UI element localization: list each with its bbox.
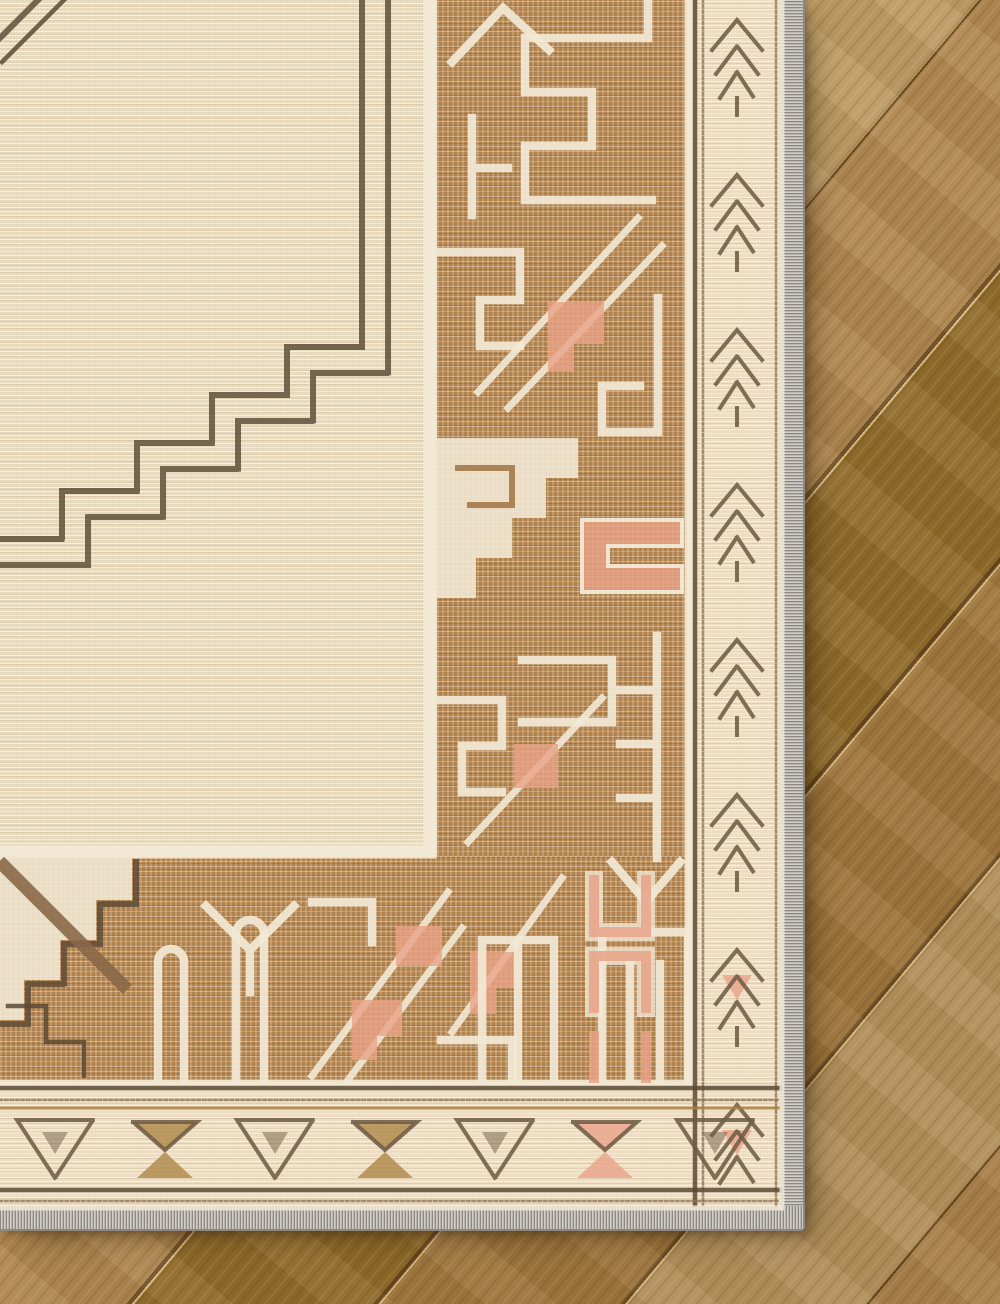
rug-serged-edge-right — [780, 0, 805, 1229]
rug-guard-band-bottom — [0, 1082, 780, 1206]
rug-guard-band-right — [687, 0, 780, 1206]
rug-serged-edge-bottom — [0, 1206, 803, 1231]
area-rug — [0, 0, 803, 1229]
rug-on-floor-photo — [0, 0, 1000, 1304]
rug-field — [0, 0, 437, 856]
rug-border-band-bottom — [0, 856, 687, 1082]
